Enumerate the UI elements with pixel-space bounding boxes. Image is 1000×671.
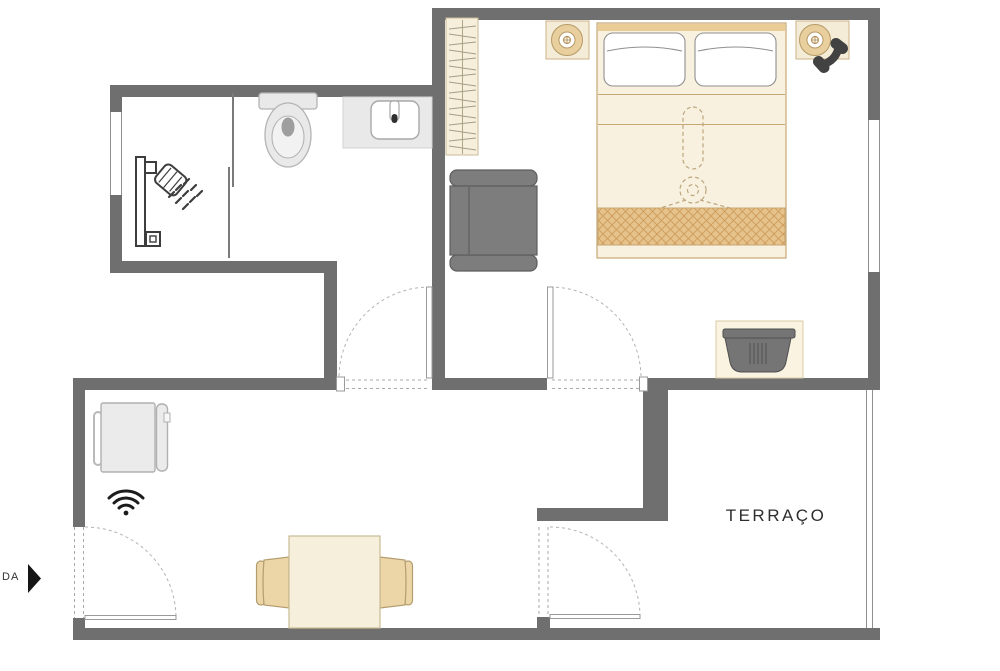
- nightstand-lamp-icon: [552, 25, 583, 56]
- plan-graphics: [0, 0, 1000, 671]
- wardrobe-hangers-icon: [446, 18, 478, 155]
- nightstand-left: [546, 21, 589, 59]
- terrace-label: TERRAÇO: [716, 506, 836, 526]
- shower-icon: [136, 157, 202, 246]
- door-swing-arc: [85, 527, 176, 618]
- dining-chair-left: [257, 557, 290, 608]
- entrance-door: [75, 527, 177, 620]
- dining-chair-right: [380, 557, 413, 608]
- armchair-icon: [450, 170, 537, 271]
- door-swing-arc: [339, 287, 430, 378]
- door-swing-arc: [550, 527, 640, 617]
- sink-icon: [343, 97, 432, 148]
- toilet-icon: [259, 93, 317, 167]
- door-leaf: [85, 616, 176, 620]
- terrace-door: [539, 527, 640, 619]
- door-swing-arc: [550, 287, 641, 378]
- dining-table-icon: [289, 536, 380, 628]
- door-leaf: [427, 287, 433, 378]
- hallway-door: [337, 287, 433, 391]
- nightstand-lamp-icon: [800, 25, 831, 56]
- blanket-band: [598, 208, 785, 245]
- door-leaf: [550, 615, 640, 619]
- door-leaf: [548, 287, 554, 378]
- bed-icon: [597, 23, 786, 258]
- entrance-arrow-icon: [28, 564, 41, 593]
- wifi-icon: [109, 491, 143, 515]
- bedroom-door: [548, 287, 648, 391]
- laundry-basket-icon: [716, 321, 803, 378]
- entrance-label: DA: [2, 571, 19, 583]
- floor-plan: TERRAÇO DA: [0, 0, 1000, 671]
- fridge-icon: [94, 403, 170, 472]
- shower-screen: [229, 93, 233, 258]
